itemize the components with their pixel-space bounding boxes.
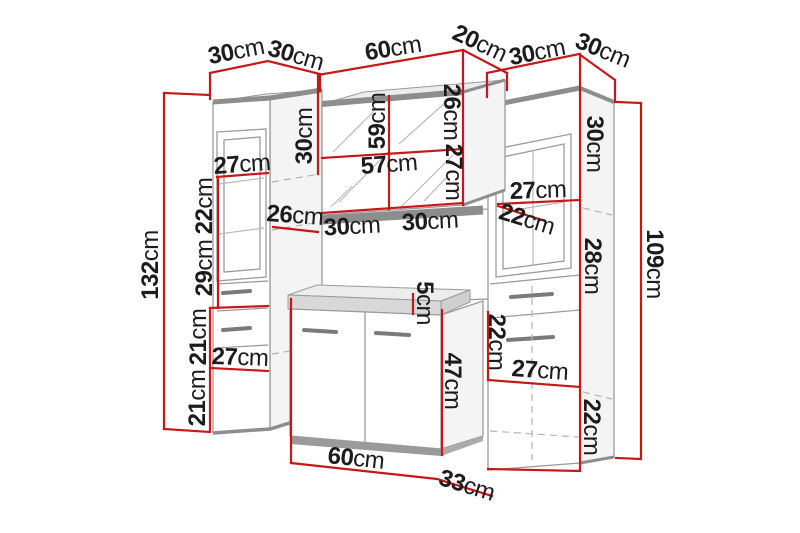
dim-label-top-widths-30cm: 30cm (265, 34, 327, 76)
dim-label-right-cabinet-27cm: 27cm (511, 355, 569, 386)
dim-label-mirror-cabinet-30cm: 30cm (291, 108, 318, 165)
dim-label-top-widths-60cm: 60cm (363, 30, 423, 66)
furniture-dimension-diagram: 30cm30cm60cm20cm30cm30cm132cm27cm22cm29c… (0, 0, 800, 533)
dim-label-mirror-cabinet-30cm: 30cm (401, 206, 459, 236)
dim-label-sink-cabinet-5cm: 5cm (412, 281, 439, 325)
dim-label-right-cabinet-22cm: 22cm (579, 399, 606, 456)
dim-label-sink-cabinet-47cm: 47cm (440, 353, 467, 410)
dim-label-top-widths-30cm: 30cm (507, 33, 568, 70)
dim-label-mirror-cabinet-59cm: 59cm (364, 93, 391, 150)
dim-label-right-cabinet-27cm: 27cm (509, 176, 567, 205)
dim-label-right-cabinet-22cm: 22cm (484, 314, 511, 371)
dim-label-mirror-cabinet-30cm: 30cm (323, 211, 381, 241)
dim-label-right-cabinet-28cm: 28cm (580, 238, 607, 295)
dim-label-right-cabinet-30cm: 30cm (582, 116, 609, 173)
diagram-canvas: 30cm30cm60cm20cm30cm30cm132cm27cm22cm29c… (0, 0, 800, 533)
dim-label-left-cabinet-21cm: 21cm (184, 370, 211, 427)
drawer-handle (223, 328, 250, 330)
dim-label-sink-cabinet-60cm: 60cm (326, 442, 385, 475)
dim-label-left-cabinet-27cm: 27cm (213, 149, 271, 180)
dim-label-mirror-cabinet-57cm: 57cm (360, 149, 418, 180)
dim-label-left-cabinet-26cm: 26cm (266, 200, 324, 231)
dim-label-mirror-cabinet-27cm: 27cm (441, 144, 468, 201)
dim-label-left-cabinet-132cm: 132cm (137, 230, 164, 300)
dim-label-left-cabinet-29cm: 29cm (191, 240, 218, 297)
dim-label-left-cabinet-22cm: 22cm (191, 178, 218, 235)
door-handle (376, 333, 409, 335)
dim-label-left-cabinet-21cm: 21cm (185, 309, 212, 366)
dim-label-right-cabinet-109cm: 109cm (642, 229, 669, 299)
drawer-handle (223, 291, 250, 293)
dim-label-mirror-cabinet-26cm: 26cm (439, 84, 466, 141)
mirror-side-face (463, 80, 505, 205)
door-handle (304, 330, 336, 332)
dim-label-left-cabinet-27cm: 27cm (211, 343, 269, 372)
